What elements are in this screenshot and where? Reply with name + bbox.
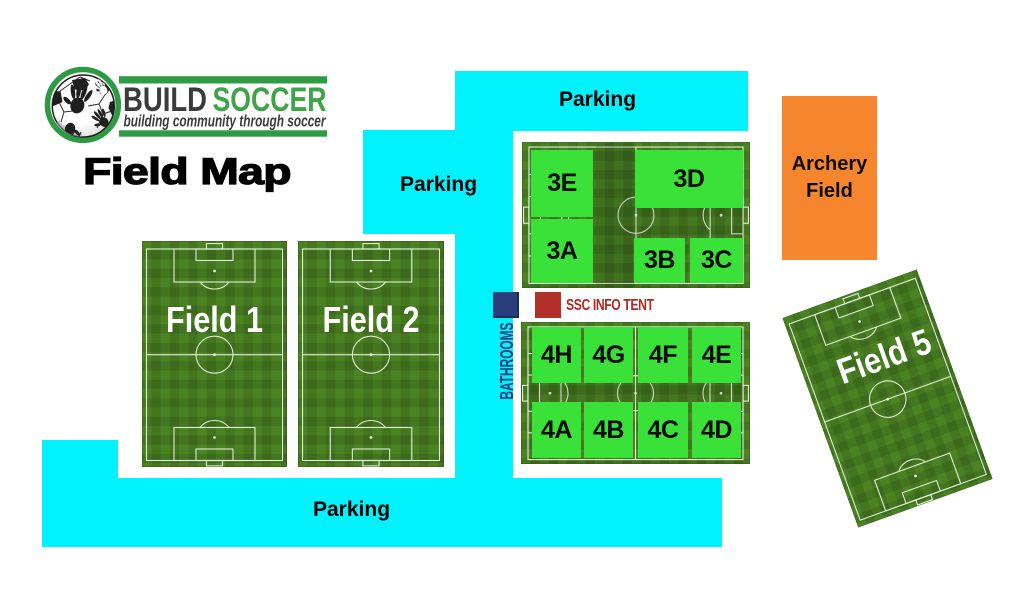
svg-text:building community through soc: building community through soccer <box>124 112 327 131</box>
